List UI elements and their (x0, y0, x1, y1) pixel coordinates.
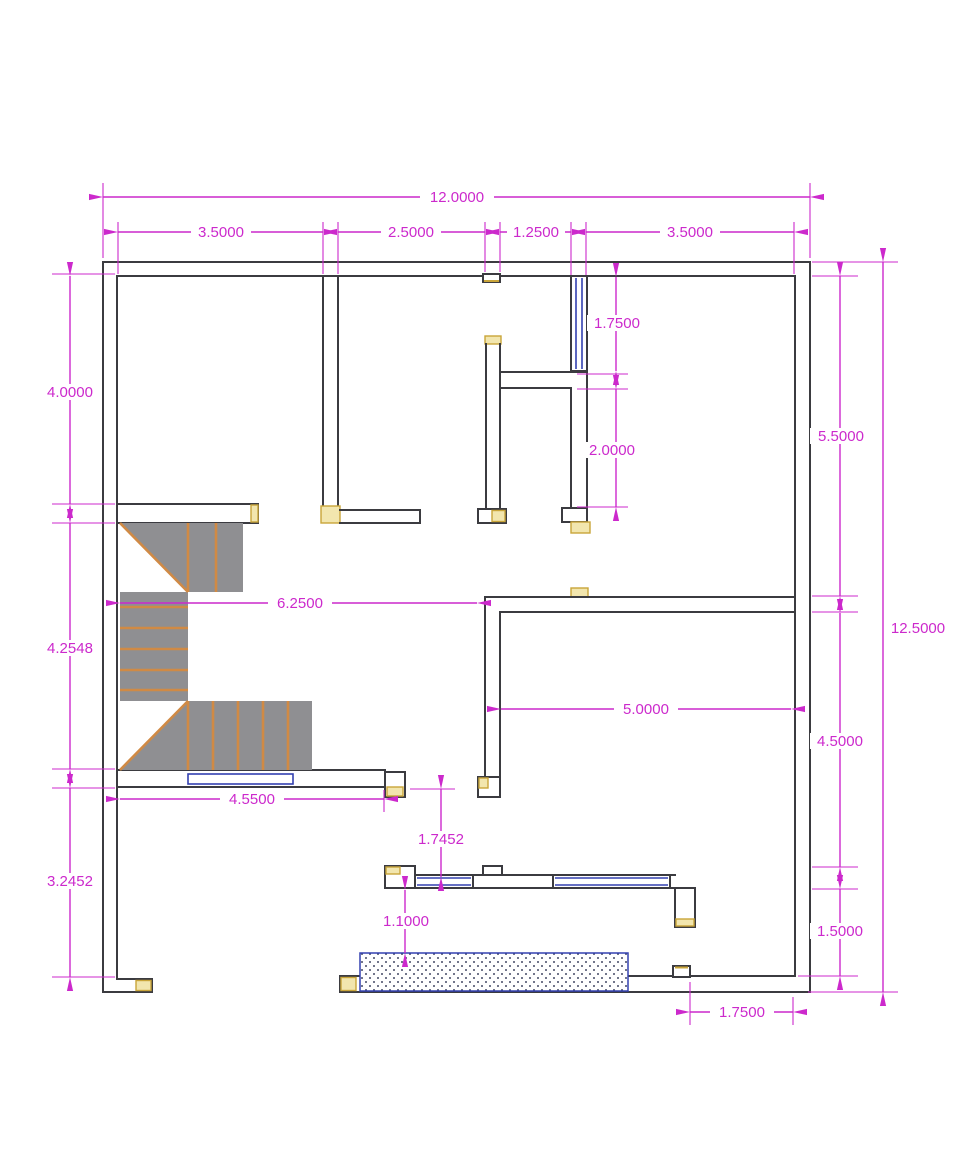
window-top (571, 276, 587, 371)
dim-bottom-right-offset: 1.7500 (690, 1004, 793, 1021)
wall-foot-2 (562, 508, 587, 522)
dim-right-lower: 4.5000 (810, 613, 871, 867)
dim-wall-below-window: 2.0000 (582, 389, 642, 507)
dim-right-upper: 5.5000 (810, 276, 871, 596)
wall-topleft-bottom (117, 504, 258, 523)
dim-top-seg-1: 3.5000 (118, 224, 323, 241)
dim-left-middle: 4.2548 (40, 523, 100, 769)
windows-bottom (417, 878, 668, 885)
svg-text:4.0000: 4.0000 (47, 384, 93, 401)
wall-connector (500, 372, 586, 388)
dim-door-offset: 1.7452 (409, 789, 473, 877)
wall-topleft-topmiddle (323, 276, 338, 505)
staircase (120, 523, 312, 770)
wall-midright-top (485, 597, 795, 612)
dim-left-lower: 3.2452 (40, 788, 100, 977)
dim-stair-width: 4.5500 (120, 791, 384, 808)
dim-top-seg-4: 3.5000 (586, 224, 794, 241)
svg-text:4.2548: 4.2548 (47, 640, 93, 657)
porch-hatch (360, 953, 628, 991)
floor-plan-canvas: 12.0000 3.5000 2.5000 1.2500 3.5000 4.00… (0, 0, 960, 1175)
svg-text:1.5000: 1.5000 (817, 923, 863, 940)
dim-top-seg-3: 1.2500 (500, 224, 571, 241)
dim-right-bottom: 1.5000 (810, 889, 871, 976)
svg-text:4.5500: 4.5500 (229, 791, 275, 808)
dim-left-upper: 4.0000 (40, 276, 100, 504)
svg-text:12.5000: 12.5000 (891, 620, 945, 637)
svg-text:3.5000: 3.5000 (667, 224, 713, 241)
svg-text:1.7500: 1.7500 (594, 315, 640, 332)
svg-text:2.5000: 2.5000 (388, 224, 434, 241)
dim-window-height: 1.7500 (587, 277, 647, 371)
svg-text:1.1000: 1.1000 (383, 913, 429, 930)
svg-text:4.5000: 4.5000 (817, 733, 863, 750)
svg-text:2.0000: 2.0000 (589, 442, 635, 459)
jamb-2 (251, 505, 258, 522)
svg-text:5.5000: 5.5000 (818, 428, 864, 445)
floor-plan-page: 12.0000 3.5000 2.5000 1.2500 3.5000 4.00… (0, 0, 960, 1175)
wall-mid-vertical-left (486, 344, 500, 509)
jamb-1 (321, 506, 340, 523)
wall-below-window (571, 371, 587, 508)
jamb-4 (571, 588, 588, 597)
dim-overall-width: 12.0000 (103, 189, 810, 206)
stair-rail-symbol (188, 774, 293, 784)
jamb-3 (485, 336, 501, 344)
svg-text:3.5000: 3.5000 (198, 224, 244, 241)
stair-flight-top (120, 523, 243, 592)
wall-bottom-middle (415, 875, 675, 888)
dim-label: 12.0000 (430, 189, 484, 206)
stair-flight-bottom (120, 701, 312, 770)
stair-flight-middle (120, 592, 188, 701)
svg-text:5.0000: 5.0000 (623, 701, 669, 718)
svg-text:1.7452: 1.7452 (418, 831, 464, 848)
wall-midright-left (485, 597, 500, 777)
dim-top-seg-2: 2.5000 (338, 224, 485, 241)
svg-text:6.2500: 6.2500 (277, 595, 323, 612)
left-wall-foot-jamb (136, 981, 151, 991)
wall-flange (340, 510, 420, 523)
jamb-bump (483, 866, 502, 875)
dim-room-width: 5.0000 (501, 701, 791, 718)
bottom-wall-left-jamb (341, 978, 356, 991)
svg-text:3.2452: 3.2452 (47, 873, 93, 890)
svg-text:1.7500: 1.7500 (719, 1004, 765, 1021)
interior-walls (117, 274, 795, 927)
dim-porch-offset: 1.1000 (374, 890, 438, 953)
outer-walls (103, 262, 810, 992)
dim-overall-height: 12.5000 (883, 262, 952, 992)
svg-text:1.2500: 1.2500 (513, 224, 559, 241)
